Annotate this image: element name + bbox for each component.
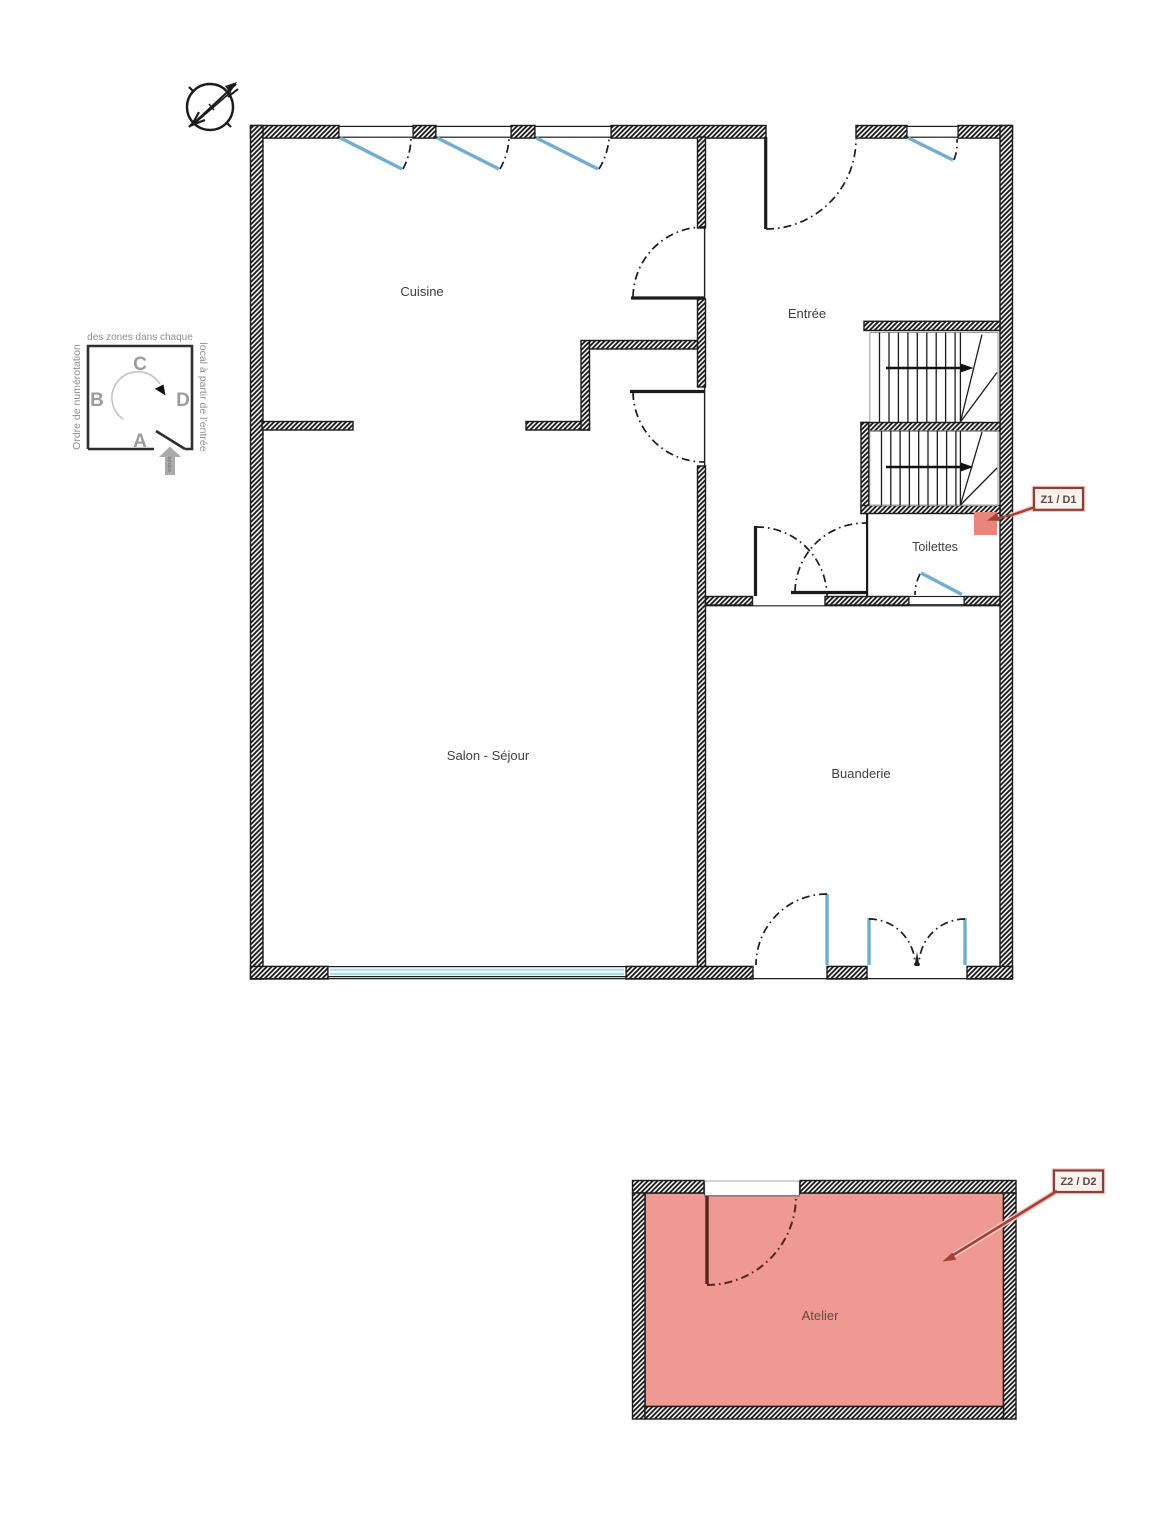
svg-text:Ordre de numérotation: Ordre de numérotation	[71, 344, 83, 450]
svg-text:D: D	[176, 390, 190, 411]
svg-text:Toilettes: Toilettes	[912, 540, 958, 554]
svg-text:Entrée: Entrée	[788, 306, 826, 321]
svg-text:local à partir de l’entrée: local à partir de l’entrée	[197, 342, 209, 451]
svg-text:A: A	[133, 431, 147, 452]
svg-text:Salon - Séjour: Salon - Séjour	[447, 748, 530, 763]
svg-text:B: B	[90, 390, 104, 411]
svg-text:Z2 / D2: Z2 / D2	[1060, 1176, 1096, 1188]
svg-text:entrée: entrée	[167, 456, 173, 472]
svg-text:Z1 / D1: Z1 / D1	[1040, 494, 1076, 506]
svg-text:Cuisine: Cuisine	[400, 284, 443, 299]
svg-text:Buanderie: Buanderie	[831, 766, 890, 781]
svg-text:Atelier: Atelier	[802, 1308, 840, 1323]
svg-text:des zones dans chaque: des zones dans chaque	[87, 332, 193, 343]
